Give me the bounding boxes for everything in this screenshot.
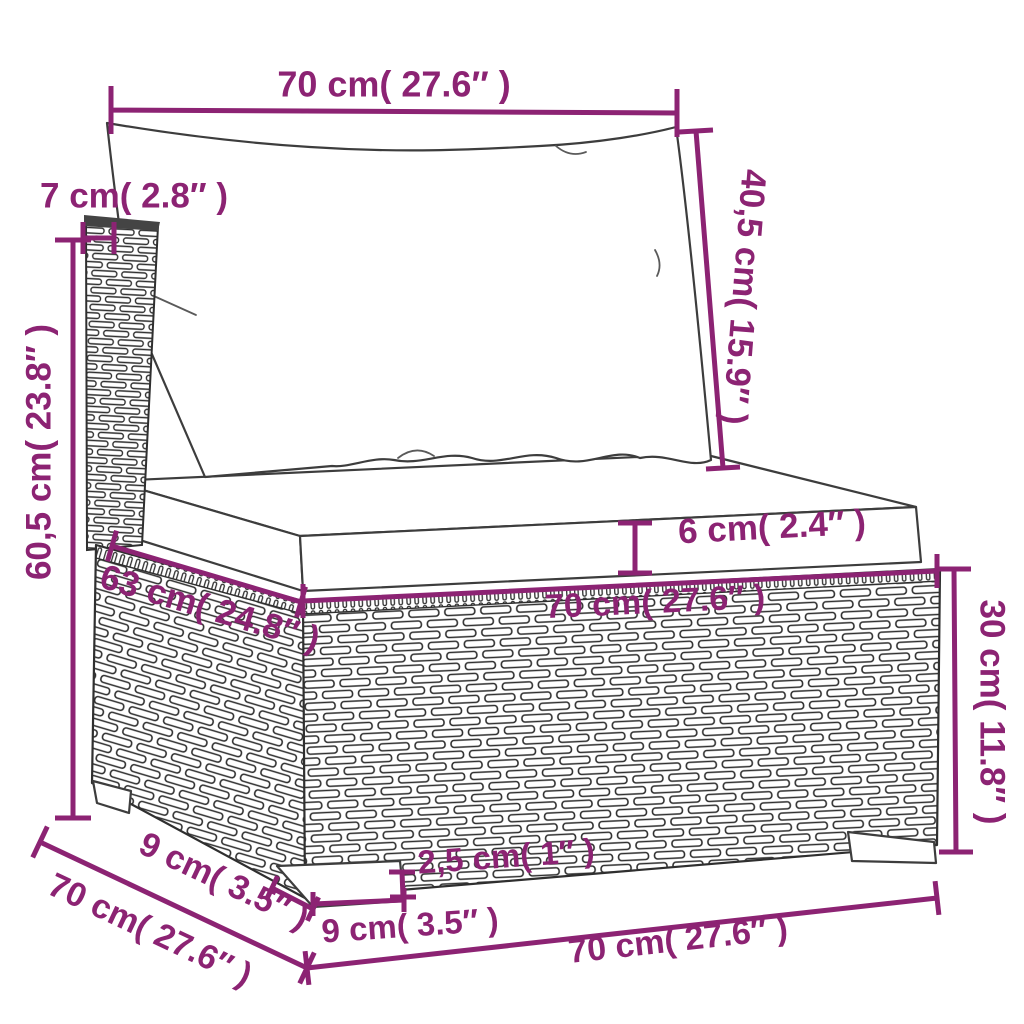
dimension-line: [937, 569, 973, 852]
dim-total-height: 60,5 cm( 23.8″ ): [20, 240, 92, 818]
diagram-canvas: 70 cm( 27.6″ ) 7 cm( 2.8″ ) 60,5 cm( 23.…: [0, 0, 1024, 1024]
dimension-label: 70 cm( 27.6″ ): [277, 64, 510, 105]
dimension-label: 70 cm( 27.6″ ): [566, 909, 789, 971]
dim-base-height: 30 cm( 11.8″ ): [937, 569, 1012, 852]
dimension-label: 60,5 cm( 23.8″ ): [20, 324, 59, 580]
dimension-label: 30 cm( 11.8″ ): [973, 600, 1012, 825]
dim-back-width: 70 cm( 27.6″ ): [111, 64, 677, 138]
dimension-label: 7 cm( 2.8″ ): [40, 177, 228, 216]
dimension-label: 9 cm( 3.5″ ): [320, 900, 499, 949]
sofa-dimension-diagram: 70 cm( 27.6″ ) 7 cm( 2.8″ ) 60,5 cm( 23.…: [0, 0, 1024, 1024]
dimension-label: 40,5 cm( 15.9″ ): [715, 168, 774, 426]
